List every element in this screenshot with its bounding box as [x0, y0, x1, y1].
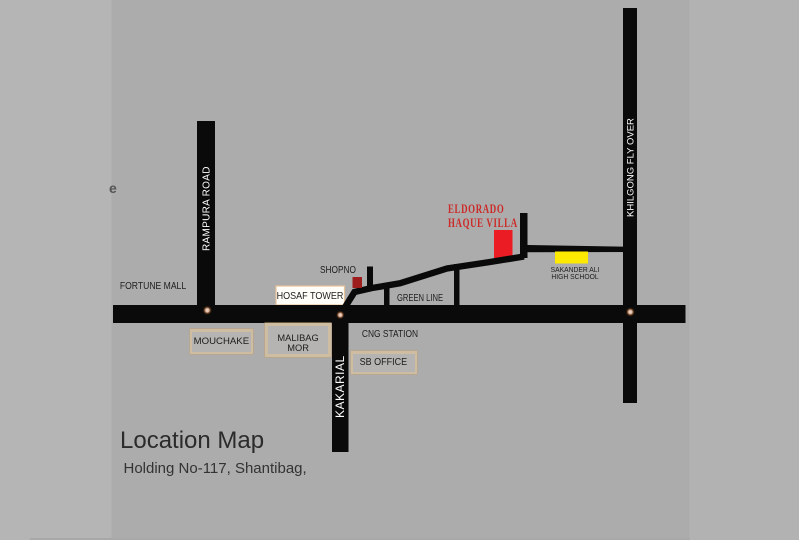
svg-text:KAKARIAL: KAKARIAL: [333, 355, 347, 418]
svg-text:RAMPURA ROAD: RAMPURA ROAD: [202, 166, 213, 251]
svg-text:KHILGONG FLY OVER: KHILGONG FLY OVER: [626, 118, 637, 217]
